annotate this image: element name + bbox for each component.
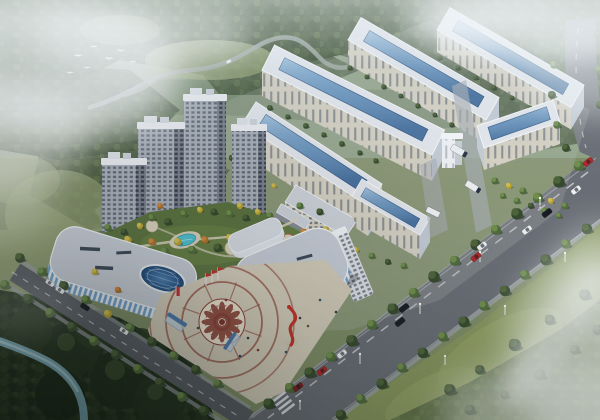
vignette: [0, 0, 600, 420]
aerial-rendering: [0, 0, 600, 420]
screenshot-stage: [0, 0, 600, 420]
